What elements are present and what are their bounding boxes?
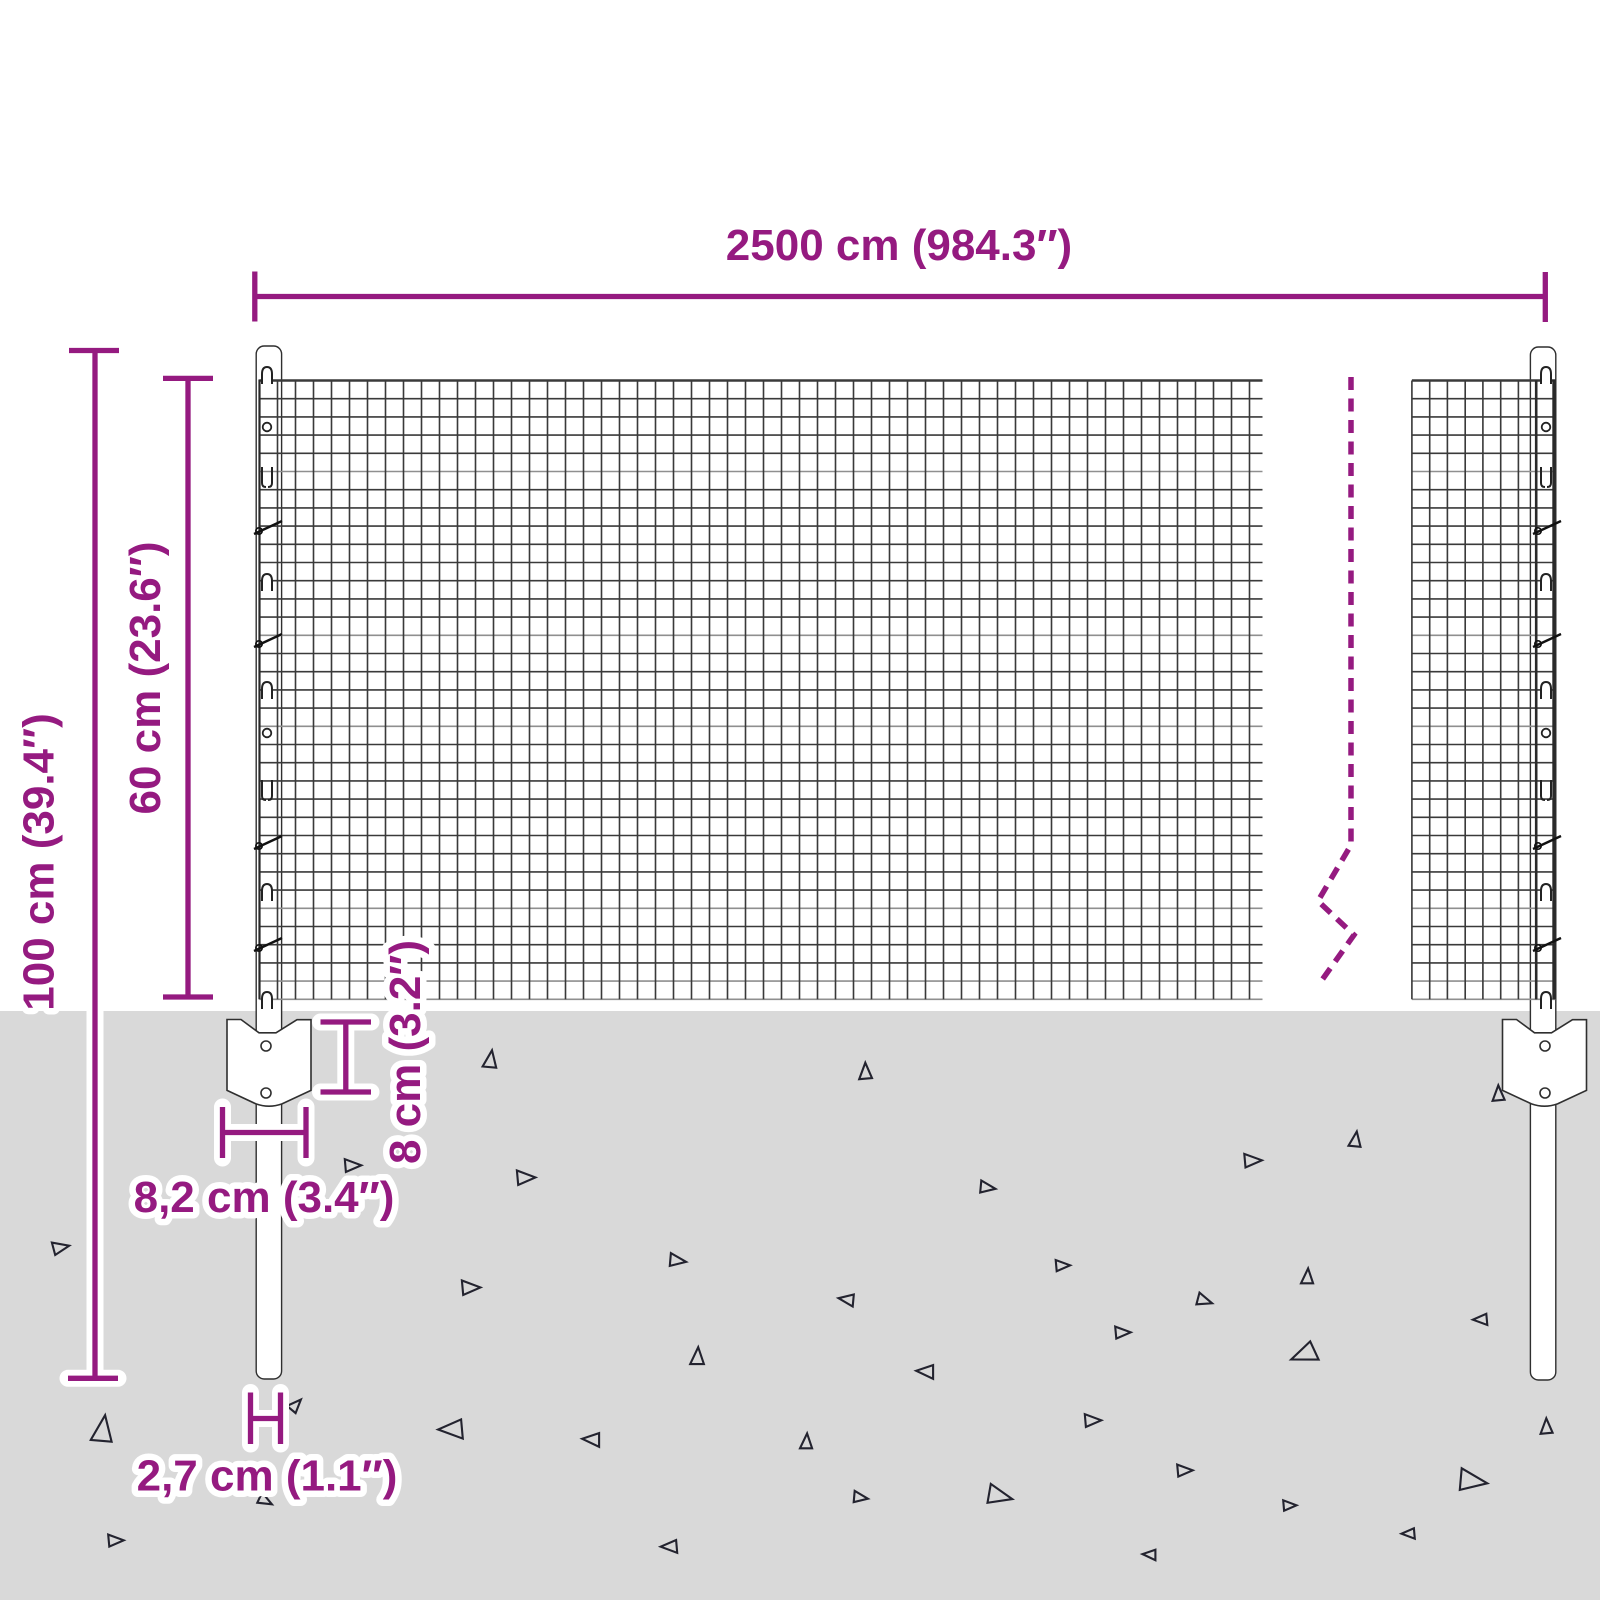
svg-text:8 cm (3.2″): 8 cm (3.2″) (381, 940, 430, 1164)
svg-text:100 cm (39.4″): 100 cm (39.4″) (15, 713, 64, 1010)
svg-text:60 cm (23.6″): 60 cm (23.6″) (121, 541, 170, 814)
svg-text:2500 cm (984.3″): 2500 cm (984.3″) (726, 221, 1072, 270)
svg-text:8,2 cm (3.4″): 8,2 cm (3.4″) (134, 1173, 395, 1222)
svg-text:2,7 cm (1.1″): 2,7 cm (1.1″) (137, 1452, 398, 1501)
